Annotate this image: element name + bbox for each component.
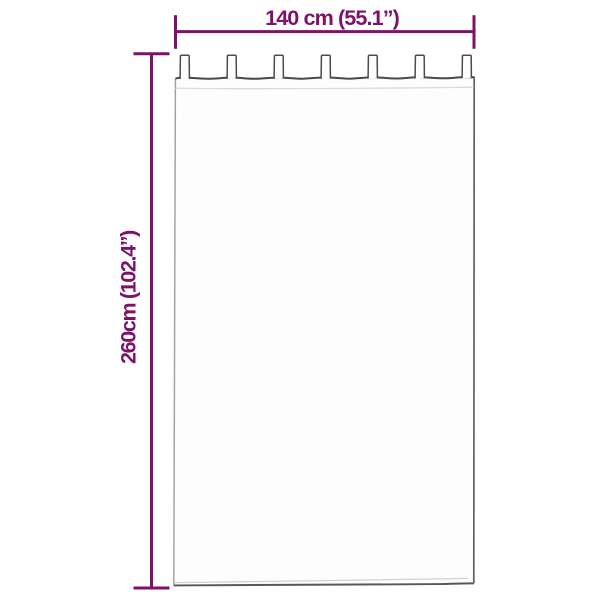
svg-text:260cm (102.4”): 260cm (102.4”) xyxy=(117,230,141,364)
svg-text:140 cm (55.1”): 140 cm (55.1”) xyxy=(265,5,400,30)
